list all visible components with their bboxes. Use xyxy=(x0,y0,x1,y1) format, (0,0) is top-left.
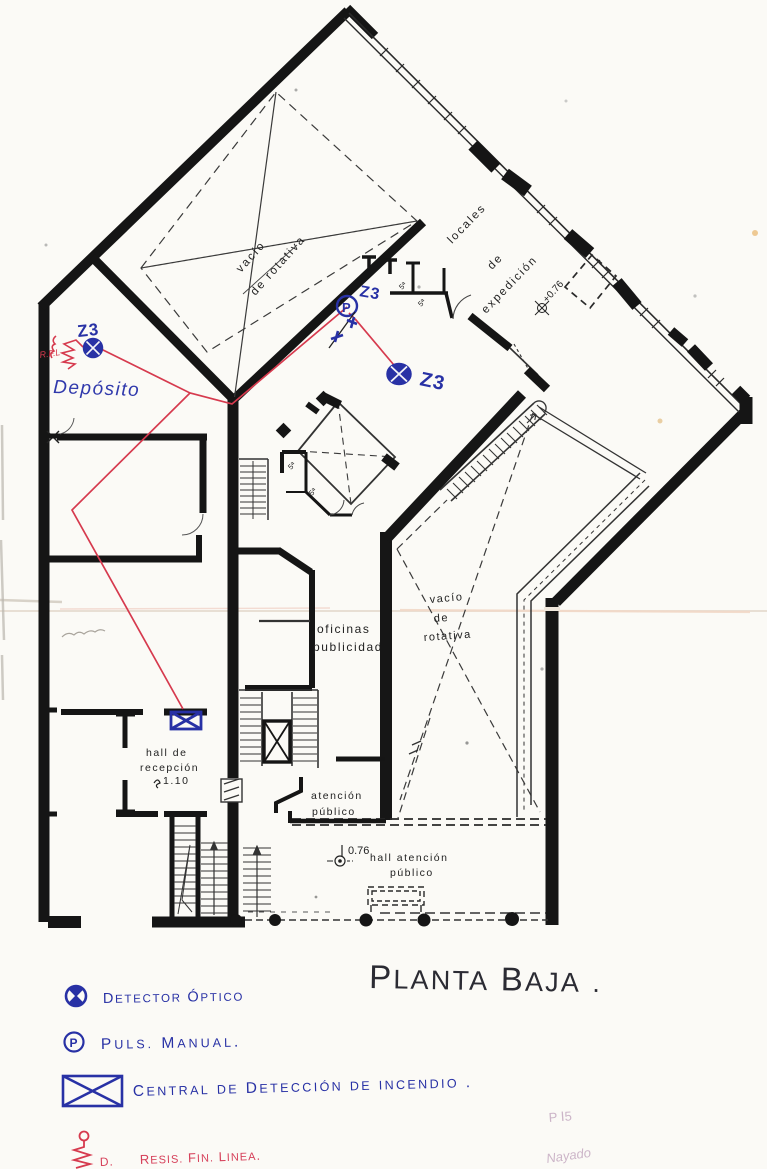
svg-text:público: público xyxy=(312,806,356,818)
svg-text:hall atención: hall atención xyxy=(370,852,448,864)
svg-text:0.76: 0.76 xyxy=(348,845,369,857)
svg-text:publicidad: publicidad xyxy=(313,640,383,654)
svg-text:recepción: recepción xyxy=(140,762,199,774)
svg-text:P: P xyxy=(342,300,351,315)
svg-text:1.10: 1.10 xyxy=(163,775,189,787)
svg-text:Depósito: Depósito xyxy=(53,377,141,401)
svg-text:atención: atención xyxy=(311,790,363,802)
svg-text:​D.: ​D. xyxy=(100,1155,114,1169)
svg-text:Z3: Z3 xyxy=(358,283,381,303)
svg-text:hall de: hall de xyxy=(146,747,187,759)
svg-text:P Ⅰ5: P Ⅰ5 xyxy=(548,1108,572,1125)
svg-text:P: P xyxy=(70,1036,78,1050)
svg-text:público: público xyxy=(390,867,434,879)
svg-text:de: de xyxy=(433,612,449,625)
svg-text:Z3: Z3 xyxy=(76,320,100,341)
svg-text:oficinas: oficinas xyxy=(317,622,371,636)
